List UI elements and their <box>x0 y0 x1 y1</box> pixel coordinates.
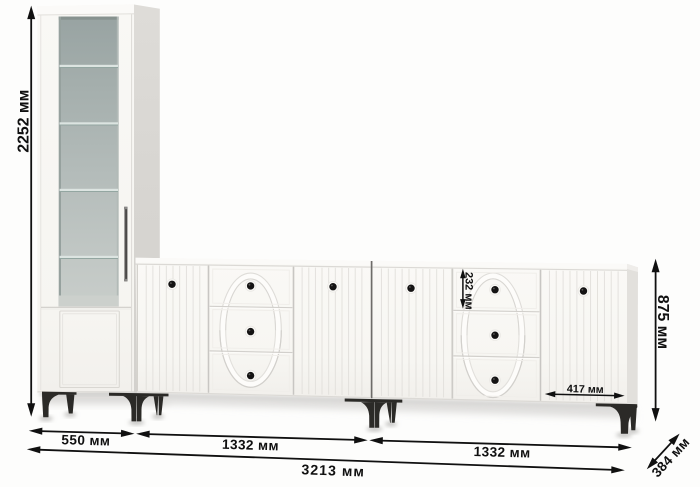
svg-text:550 мм: 550 мм <box>61 432 110 448</box>
svg-text:3213 мм: 3213 мм <box>301 462 365 480</box>
svg-text:232 мм: 232 мм <box>463 272 475 310</box>
svg-text:875 мм: 875 мм <box>654 295 671 349</box>
svg-text:417 мм: 417 мм <box>567 383 604 396</box>
svg-text:1332 мм: 1332 мм <box>473 444 530 461</box>
svg-text:2252 мм: 2252 мм <box>15 90 32 153</box>
svg-text:1332 мм: 1332 мм <box>222 437 279 454</box>
